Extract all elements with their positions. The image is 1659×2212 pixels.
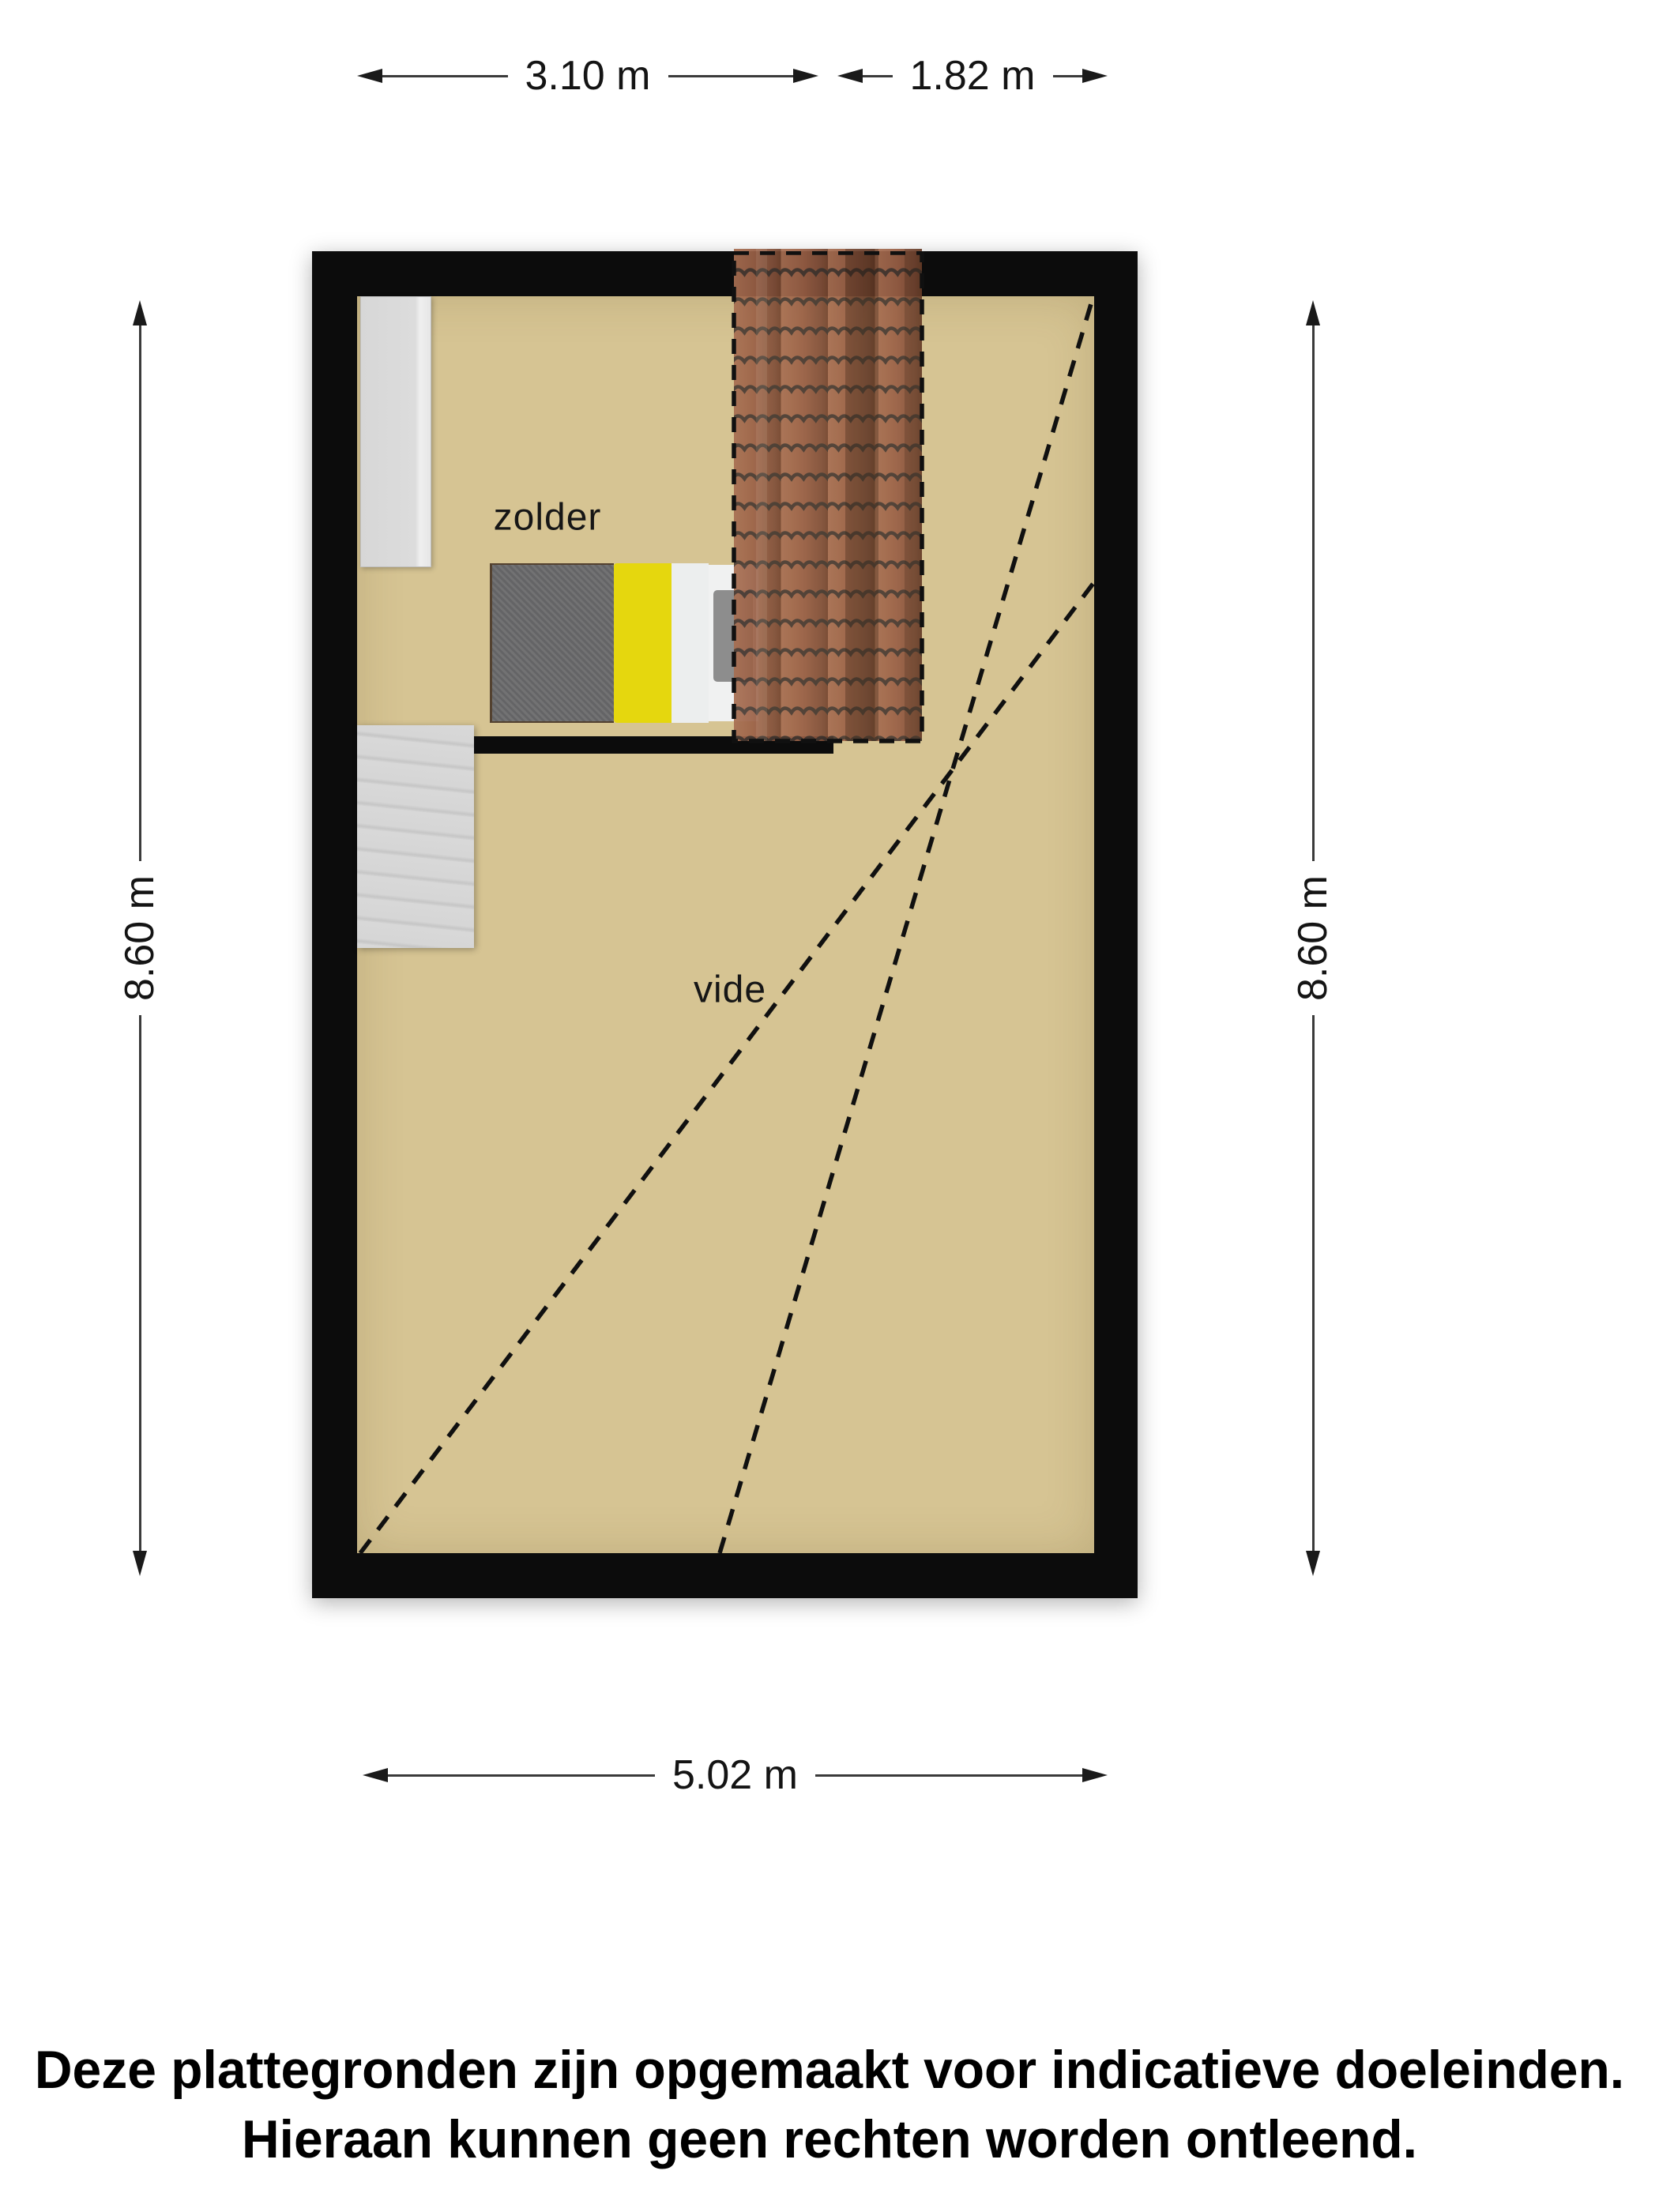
arrow-down-icon (133, 1551, 147, 1576)
arrow-left-icon (837, 69, 863, 83)
dimension-top-roof: 1.82 m (837, 52, 1108, 100)
bed-sheet (671, 563, 709, 723)
arrow-up-icon (1306, 300, 1320, 325)
disclaimer-line-1: Deze plattegronden zijn opgemaakt voor i… (25, 2035, 1635, 2105)
bed-blanket (614, 563, 671, 723)
dimension-line (139, 325, 141, 861)
arrow-up-icon (133, 300, 147, 325)
dimension-label: 1.82 m (910, 52, 1036, 100)
dimension-top-attic: 3.10 m (357, 52, 818, 100)
dimension-line (815, 1774, 1082, 1777)
arrow-left-icon (357, 69, 382, 83)
dimension-line (1053, 75, 1083, 77)
room-label-vide: vide (694, 969, 766, 1012)
room-label-zolder: zolder (494, 496, 602, 540)
dimension-bottom-width: 5.02 m (363, 1751, 1108, 1799)
disclaimer-text: Deze plattegronden zijn opgemaakt voor i… (25, 2035, 1635, 2174)
bed-duvet (490, 563, 614, 723)
dimension-line (388, 1774, 655, 1777)
dimension-left-height: 8.60 m (116, 300, 164, 1576)
arrow-left-icon (363, 1768, 388, 1782)
dimension-line (1312, 325, 1315, 861)
dimension-line (863, 75, 893, 77)
floorplan-attic: zolder vide (312, 251, 1138, 1598)
dimension-right-height: 8.60 m (1289, 300, 1337, 1576)
dimension-label: 5.02 m (672, 1751, 798, 1799)
dimension-line (1312, 1015, 1315, 1551)
arrow-right-icon (1082, 1768, 1108, 1782)
dimension-line (382, 75, 508, 77)
bed (490, 563, 758, 723)
staircase (357, 725, 474, 948)
arrow-right-icon (1082, 69, 1108, 83)
arrow-down-icon (1306, 1551, 1320, 1576)
arrow-right-icon (793, 69, 818, 83)
roof-tiles-section (734, 249, 922, 741)
dimension-label: 8.60 m (1289, 875, 1337, 1001)
disclaimer-line-2: Hieraan kunnen geen rechten worden ontle… (25, 2105, 1635, 2174)
dimension-label: 8.60 m (116, 875, 164, 1001)
dimension-line (139, 1015, 141, 1551)
dimension-label: 3.10 m (525, 52, 651, 100)
closet (360, 296, 431, 567)
dimension-line (668, 75, 794, 77)
